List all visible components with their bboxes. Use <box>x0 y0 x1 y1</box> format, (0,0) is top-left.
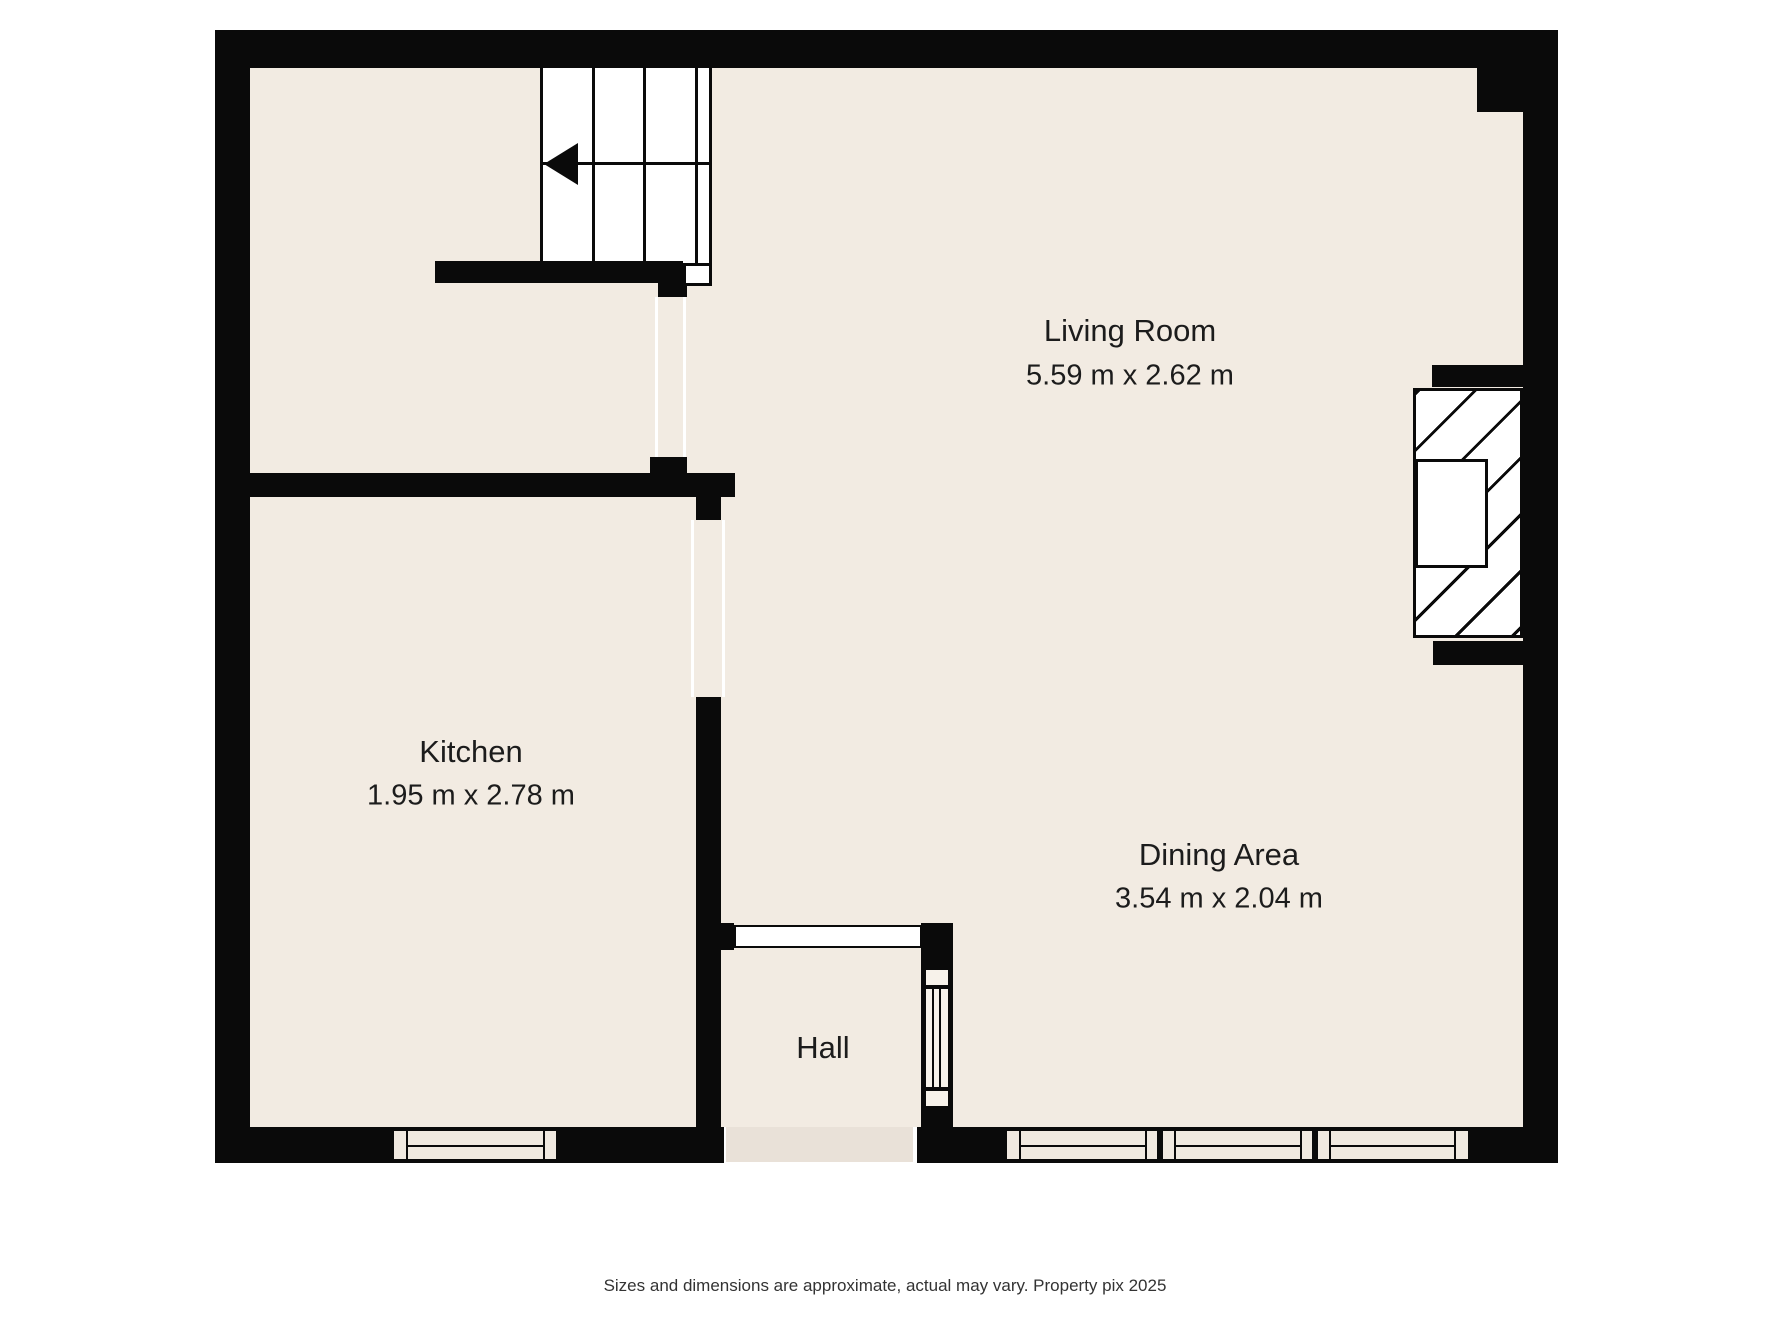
living-room-dimensions: 5.59 m x 2.62 m <box>1026 360 1234 393</box>
hall-top-opening <box>734 925 922 948</box>
stair-tread-line <box>592 68 595 263</box>
hall-glazed-panel <box>921 923 953 1128</box>
kitchen-window-jamb <box>543 1129 558 1161</box>
stair-bottom-step <box>683 263 712 286</box>
stair-tread-line <box>643 68 646 263</box>
kitchen-hall-divider-wall <box>696 697 721 1127</box>
wall-top <box>215 30 1558 68</box>
fireplace-stub-wall-top <box>1432 365 1523 387</box>
dining-area-label: Dining Area <box>1139 837 1299 873</box>
dining-window-sash <box>1329 1145 1456 1161</box>
kitchen-label: Kitchen <box>419 734 522 770</box>
hall-entrance-threshold <box>724 1127 915 1162</box>
kitchen-door-opening <box>691 520 725 697</box>
glazed-pane-top <box>926 970 948 985</box>
disclaimer-text: Sizes and dimensions are approximate, ac… <box>604 1276 1167 1296</box>
stair-tread-line <box>695 68 698 263</box>
dining-window-jamb <box>1300 1129 1314 1161</box>
wall-right-corner-step <box>1477 68 1558 112</box>
dining-window-sash <box>1174 1145 1302 1161</box>
dining-area-dimensions: 3.54 m x 2.04 m <box>1115 883 1323 916</box>
fireplace-stub-wall-bottom <box>1433 641 1523 665</box>
kitchen-window-sash <box>406 1145 545 1161</box>
hall-opening-stub-left <box>720 923 734 950</box>
glazed-pane-bottom <box>926 1091 948 1106</box>
kitchen-dimensions: 1.95 m x 2.78 m <box>367 780 575 813</box>
wall-right <box>1523 112 1558 1163</box>
floor-open-plan <box>250 68 1523 1127</box>
opening-living-room-upper <box>655 297 686 457</box>
living-room-label: Living Room <box>1044 313 1216 349</box>
hall-label: Hall <box>796 1030 849 1066</box>
wall-left <box>215 30 250 1163</box>
stair-direction-arrow-icon <box>544 143 578 185</box>
dining-window-jamb <box>1145 1129 1159 1161</box>
glazing-line <box>932 989 934 1087</box>
glazing-line <box>939 989 941 1087</box>
wall-stub-under-stairs <box>658 283 687 297</box>
wall-below-stairs <box>435 261 683 283</box>
fireplace-recess <box>1415 459 1488 568</box>
dining-window-jamb <box>1454 1129 1470 1161</box>
glazed-pane-middle <box>926 989 948 1087</box>
dining-window-sash <box>1019 1145 1147 1161</box>
kitchen-top-wall <box>250 473 735 497</box>
kitchen-wall-stub <box>696 497 721 520</box>
